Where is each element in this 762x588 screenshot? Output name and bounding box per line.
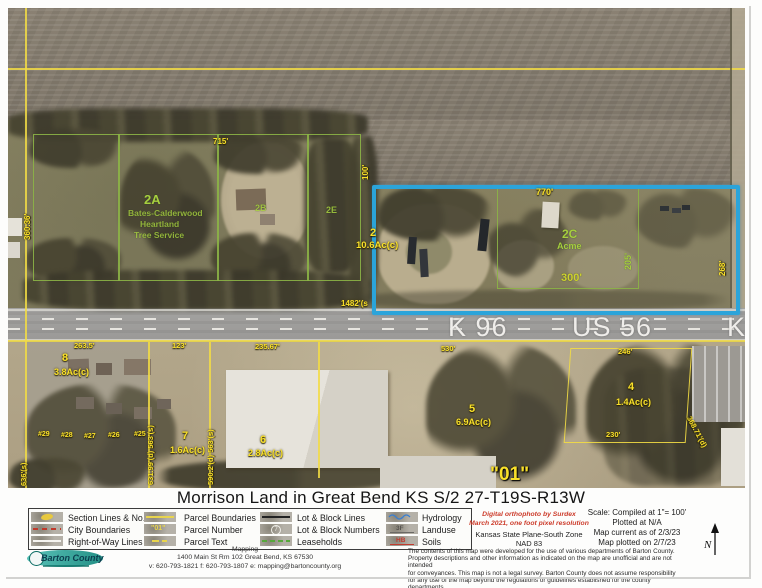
house-number: #26	[108, 432, 120, 439]
dimension-631: 631.99'(d) 563'(s)	[147, 425, 155, 485]
building-edge	[8, 218, 22, 236]
legend-item-lot-block-numbers: Lot & Block Numbers	[297, 526, 380, 535]
plowed-field-east	[360, 120, 745, 186]
parcel-6-number: 6	[260, 435, 266, 446]
disclaimer-line: The contents of this map were developed …	[408, 548, 688, 555]
parcel-line	[318, 342, 320, 478]
parcel-2e-number: 2E	[326, 206, 337, 215]
lot-number-sample: 7	[272, 526, 280, 534]
dimension-770: 770'	[536, 188, 553, 197]
legend-item-parcel-boundaries: Parcel Boundaries	[184, 514, 256, 523]
building-edge	[8, 242, 20, 258]
landuse-swatch: 3F	[386, 524, 418, 534]
legend-item-section-lines: Section Lines & No.	[68, 514, 145, 523]
scan-edge-bottom	[6, 577, 751, 579]
scan-edge-right	[749, 6, 751, 578]
parcel-7-acreage: 1.6Ac(c)	[170, 446, 205, 455]
datum-line2: NAD 83	[468, 539, 590, 548]
parcel-4-acreage: 1.4Ac(c)	[616, 398, 651, 407]
legend-item-soils: Soils	[422, 538, 441, 547]
north-letter: N	[703, 539, 712, 551]
house	[124, 359, 151, 375]
house	[76, 397, 94, 409]
logo-tagline-bar	[43, 565, 89, 567]
north-arrow: N	[702, 522, 726, 558]
dimension-100: 100'	[362, 165, 370, 180]
parcel-2a-number: 2A	[144, 193, 161, 206]
legend-item-landuse: Landuse	[422, 526, 456, 535]
lot-01-label: "01"	[490, 465, 529, 484]
section-line-vertical	[25, 8, 27, 488]
dimension-530: 530'	[441, 345, 455, 353]
legend: Section Lines & No. City Boundaries Righ…	[28, 508, 472, 550]
footer-address-block: Mapping 1400 Main St Rm 102 Great Bend, …	[95, 546, 395, 571]
dimension-1482: 1482'(s	[341, 300, 368, 308]
footer-address: 1400 Main St Rm 102 Great Bend, KS 67530	[95, 554, 395, 562]
building-edge	[721, 428, 745, 486]
section-lines-swatch	[31, 512, 63, 522]
dimension-636: 636'(s)	[20, 463, 28, 486]
road-label-k: K	[727, 314, 745, 341]
dimension-300: 300'	[561, 273, 582, 284]
disclaimer: The contents of this map were developed …	[408, 548, 688, 588]
dimension-715: 715'	[213, 138, 228, 146]
current-line: Map current as of 2/3/23	[578, 528, 696, 538]
parcel-2-number: 2	[370, 228, 376, 239]
dimension-230: 230'	[606, 431, 620, 439]
parcel-text-swatch	[144, 536, 176, 546]
soils-swatch: HB	[386, 536, 418, 546]
dimension-123: 123'	[172, 342, 186, 350]
parcel-2a-owner1: Bates-Calderwood	[128, 209, 203, 218]
parcel-2a-owner2: Heartland	[140, 220, 179, 229]
parking-lot	[692, 346, 745, 422]
dimension-205: 205'	[624, 253, 633, 270]
plotted-on-line: Map plotted on 2/7/23	[578, 538, 696, 548]
parcel-6-acreage: 2.8Ac(c)	[248, 449, 283, 458]
plotted-line: Plotted at N/A	[578, 518, 696, 528]
parcel-2b-number: 2B	[255, 204, 267, 213]
lot-block-numbers-swatch: 7	[260, 524, 292, 534]
house	[96, 363, 112, 375]
lot-block-lines-swatch	[260, 512, 292, 522]
scanned-parcel-map-page: K 96 US 56 K 2 10.6Ac(c) 2A Bates-Calder…	[0, 0, 762, 588]
section-line-horizontal	[8, 68, 745, 70]
ortho-credit: Digital orthophoto by Surdex March 2021,…	[468, 511, 590, 548]
subject-parcel-highlight	[372, 185, 740, 315]
ortho-credit-line2: March 2021, one foot pixel resolution	[468, 520, 590, 529]
parcel-2c-number: 2C	[562, 228, 577, 240]
dimension-360: 360.36'	[24, 214, 32, 240]
landuse-sample: 3F	[396, 525, 404, 532]
legend-item-city-boundaries: City Boundaries	[68, 526, 130, 535]
map-title: Morrison Land in Great Bend KS S/2 27-T1…	[0, 488, 762, 508]
footer-dept: Mapping	[95, 546, 395, 554]
dimension-268: 268'	[719, 261, 727, 276]
datum-line1: Kansas State Plane-South Zone	[468, 530, 590, 539]
soils-sample: HB	[396, 537, 405, 544]
parcel-4-number: 4	[628, 382, 634, 393]
right-of-way-swatch	[31, 536, 63, 546]
legend-item-hydrology: Hydrology	[422, 514, 462, 523]
house-number: #29	[38, 431, 50, 438]
dimension-263: 263.5'	[74, 342, 95, 350]
house-number: #28	[61, 432, 73, 439]
parcel-boundaries-swatch	[144, 512, 176, 522]
road-label-k96: K 96	[448, 314, 508, 341]
aerial-map: K 96 US 56 K 2 10.6Ac(c) 2A Bates-Calder…	[8, 8, 745, 488]
dimension-590: 590.2'(d) 563'(s)	[207, 429, 215, 485]
city-boundaries-swatch	[31, 524, 63, 534]
house-number: #25	[134, 431, 146, 438]
parcel-boundary-green	[33, 134, 120, 281]
house-number: #27	[84, 433, 96, 440]
parcel-number-swatch: "01"	[144, 524, 176, 534]
dimension-246: 246'	[618, 348, 632, 356]
disclaimer-line: Property descriptions and other informat…	[408, 555, 688, 569]
scale-line: Scale: Compiled at 1"= 100'	[578, 508, 696, 518]
legend-item-lot-block-lines: Lot & Block Lines	[297, 514, 365, 523]
house	[157, 399, 171, 409]
ortho-credit-line1: Digital orthophoto by Surdex	[468, 511, 590, 520]
parcel-8-acreage: 3.8Ac(c)	[54, 368, 89, 377]
road-label-us56: US 56	[572, 314, 652, 341]
hydrology-swatch	[386, 512, 418, 522]
parcel-7-number: 7	[182, 431, 188, 442]
disclaimer-line: for conveyances. This map is not a legal…	[408, 570, 688, 577]
parcel-5-number: 5	[469, 404, 475, 415]
leaseholds-swatch	[260, 536, 292, 546]
parcel-4-boundary	[564, 348, 693, 443]
parcel-5-acreage: 6.9Ac(c)	[456, 418, 491, 427]
house	[106, 403, 122, 414]
footer-contact: v: 620-793-1821 f: 620-793-1807 e: mappi…	[95, 563, 395, 571]
parcel-2a-owner3: Tree Service	[134, 231, 184, 240]
parcel-8-number: 8	[62, 353, 68, 364]
warehouse-annex	[380, 456, 496, 488]
legend-item-parcel-number: Parcel Number	[184, 526, 243, 535]
parcel-2-acreage: 10.6Ac(c)	[356, 241, 398, 251]
dimension-235: 235.67'	[255, 343, 280, 351]
parcel-number-sample: "01"	[151, 525, 165, 532]
scale-block: Scale: Compiled at 1"= 100' Plotted at N…	[578, 508, 696, 548]
parcel-2c-owner: Acme	[557, 242, 582, 251]
